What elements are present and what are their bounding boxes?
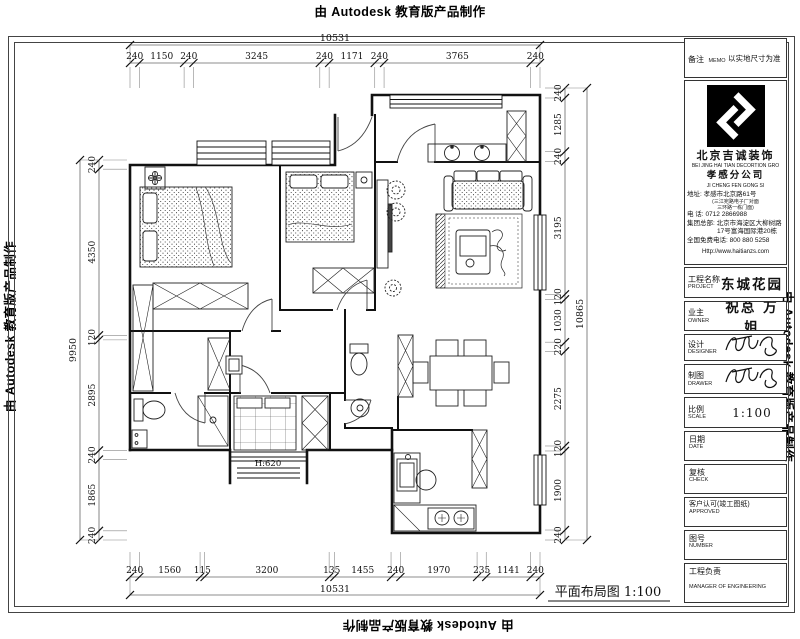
svg-text:3200: 3200 bbox=[255, 566, 278, 576]
owner-row: 业主 OWNER 祝总 万姐 bbox=[684, 301, 787, 331]
svg-text:1141: 1141 bbox=[497, 566, 520, 576]
svg-text:1865: 1865 bbox=[88, 483, 98, 506]
company-name-en: BEI JING HAI TIAN DECORTION GRO bbox=[692, 163, 779, 169]
hallway-cabinets bbox=[208, 338, 242, 390]
dimension-chain-right: 2401285240319512010302202275120190024010… bbox=[545, 84, 591, 544]
project-row: 工程名称 PROJECT 东城花园 bbox=[684, 267, 787, 298]
svg-text:1285: 1285 bbox=[554, 113, 564, 136]
svg-text:240: 240 bbox=[88, 446, 98, 463]
company-logo-icon bbox=[707, 85, 765, 147]
dimension-chain-bottom: 2401560115320013514552401970235114124010… bbox=[126, 552, 544, 599]
svg-text:240: 240 bbox=[316, 52, 333, 62]
svg-text:1970: 1970 bbox=[427, 566, 450, 576]
svg-text:120: 120 bbox=[554, 288, 564, 305]
svg-text:1455: 1455 bbox=[351, 566, 374, 576]
dimension-chain-top: 240115024032452401171240376524010531 bbox=[126, 33, 544, 88]
dimension-chain-left: 2404350120289524018652409950 bbox=[68, 156, 127, 544]
svg-text:240: 240 bbox=[88, 527, 98, 544]
manager-label-en: MANAGER OF ENGINEERING bbox=[689, 584, 782, 590]
project-label-en: PROJECT bbox=[688, 284, 721, 290]
bedroom2-nightstand bbox=[356, 172, 372, 188]
project-value: 东城花园 bbox=[721, 273, 783, 293]
number-row: 图号 NUMBER bbox=[684, 530, 787, 560]
mid-bathroom-door bbox=[345, 400, 371, 424]
exterior-walls bbox=[130, 95, 540, 533]
furniture bbox=[132, 111, 532, 531]
drawer-label-en: DRAWER bbox=[688, 381, 721, 387]
floor-plan-drawing: H:620 2401150240324524011712403765240105… bbox=[0, 0, 800, 639]
bedroom1-door bbox=[242, 299, 272, 331]
bedroom3-bed bbox=[234, 396, 296, 450]
svg-text:1150: 1150 bbox=[150, 52, 173, 62]
scale-value: 1:100 bbox=[721, 406, 783, 420]
tv-cabinet bbox=[377, 180, 392, 268]
svg-text:240: 240 bbox=[527, 566, 544, 576]
svg-text:3765: 3765 bbox=[446, 52, 469, 62]
svg-text:2275: 2275 bbox=[554, 387, 564, 410]
bathroom1-toilet bbox=[134, 399, 165, 421]
living-rug bbox=[436, 214, 522, 288]
scale-label-cn: 比例 bbox=[688, 405, 721, 414]
approved-row: 客户认可(竣工图纸) APPROVED bbox=[684, 497, 787, 527]
top-bathroom-door bbox=[397, 124, 435, 162]
kitchen-table bbox=[416, 470, 436, 490]
number-label-cn: 图号 bbox=[689, 534, 782, 543]
owner-value: 祝总 万姐 bbox=[721, 301, 783, 331]
svg-text:240: 240 bbox=[554, 148, 564, 165]
scale-row: 比例 SCALE 1:100 bbox=[684, 397, 787, 428]
check-label-en: CHECK bbox=[689, 477, 782, 483]
svg-text:240: 240 bbox=[387, 566, 404, 576]
designer-label-cn: 设计 bbox=[688, 340, 721, 349]
company-box: 北京吉诚装饰 BEI JING HAI TIAN DECORTION GRO 孝… bbox=[684, 80, 787, 265]
designer-signature bbox=[722, 334, 782, 358]
check-label-cn: 复核 bbox=[689, 468, 782, 477]
bathroom1-cabinet bbox=[132, 430, 147, 448]
coffee-table bbox=[456, 230, 506, 276]
project-label-cn: 工程名称 bbox=[688, 275, 721, 284]
company-name-cn: 北京吉诚装饰 bbox=[697, 150, 775, 163]
svg-text:4350: 4350 bbox=[88, 241, 98, 264]
bedroom3-wardrobe bbox=[302, 396, 328, 450]
svg-text:240: 240 bbox=[126, 52, 143, 62]
owner-label-cn: 业主 bbox=[688, 308, 721, 317]
hall-cabinet bbox=[398, 335, 413, 397]
kitchen-stove-counter bbox=[394, 505, 476, 531]
dining-set bbox=[413, 340, 509, 406]
svg-text:115: 115 bbox=[194, 566, 211, 576]
svg-text:10531: 10531 bbox=[320, 33, 350, 44]
svg-text:1560: 1560 bbox=[158, 566, 181, 576]
kitchen-cabinet bbox=[472, 430, 487, 488]
branch-name-en: JI CHENG FEN GONG SI bbox=[707, 183, 765, 189]
svg-text:10531: 10531 bbox=[320, 584, 350, 595]
svg-text:9950: 9950 bbox=[68, 338, 79, 362]
svg-text:135: 135 bbox=[323, 566, 340, 576]
svg-text:1030: 1030 bbox=[554, 309, 564, 332]
svg-text:235: 235 bbox=[473, 566, 490, 576]
company-website: Http://www.haitianzs.com bbox=[687, 249, 784, 257]
sofa bbox=[444, 171, 532, 211]
bedroom3-door bbox=[240, 365, 270, 393]
number-label-en: NUMBER bbox=[689, 543, 782, 549]
bathroom-vanity bbox=[428, 144, 506, 162]
bay-window-steps bbox=[237, 468, 300, 478]
bathroom1-door bbox=[175, 393, 205, 423]
check-row: 复核 CHECK bbox=[684, 464, 787, 494]
manager-label-cn: 工程负责 bbox=[689, 567, 782, 576]
approved-label-en: APPROVED bbox=[689, 509, 782, 515]
svg-text:240: 240 bbox=[88, 156, 98, 173]
svg-text:240: 240 bbox=[554, 84, 564, 101]
owner-label-en: OWNER bbox=[688, 318, 721, 324]
memo-label-en: MEMO bbox=[708, 58, 725, 64]
entry-door bbox=[338, 117, 372, 151]
company-contact: 地址: 孝感市北京路61号 (三江宛路电子厂对面 三环路一栋门面) 电 话: 0… bbox=[687, 191, 784, 258]
drawing-title: 平面布局图 1:100 bbox=[548, 585, 670, 601]
svg-text:220: 220 bbox=[554, 338, 564, 355]
bay-window-label: H:620 bbox=[255, 459, 282, 469]
svg-text:10865: 10865 bbox=[575, 299, 586, 329]
svg-text:1171: 1171 bbox=[340, 52, 363, 62]
memo-box: 备注 MEMO 以实地尺寸为准 bbox=[684, 38, 787, 78]
autocad-plot-page: 由 Autodesk 教育版产品制作 由 Autodesk 教育版产品制作 由 … bbox=[0, 0, 800, 639]
memo-note: 以实地尺寸为准 bbox=[726, 53, 783, 64]
designer-row: 设计 DESIGNER bbox=[684, 334, 787, 361]
date-row: 日期 DATE bbox=[684, 431, 787, 461]
bedroom1-bed bbox=[140, 187, 232, 267]
bedroom2-door bbox=[337, 280, 367, 310]
drawer-row: 制图 DRAWER bbox=[684, 364, 787, 394]
memo-label-cn: 备注 bbox=[688, 55, 704, 64]
svg-text:1900: 1900 bbox=[554, 479, 564, 502]
svg-text:240: 240 bbox=[180, 52, 197, 62]
approved-label-cn: 客户认可(竣工图纸) bbox=[689, 501, 782, 509]
svg-text:120: 120 bbox=[88, 329, 98, 346]
drawer-signature bbox=[722, 364, 782, 390]
drawing-title-text: 平面布局图 1:100 bbox=[555, 585, 662, 600]
designer-label-en: DESIGNER bbox=[688, 349, 721, 355]
date-label-en: DATE bbox=[689, 444, 782, 450]
date-label-cn: 日期 bbox=[689, 435, 782, 444]
bathroom-tall-cabinet bbox=[507, 111, 526, 162]
svg-text:240: 240 bbox=[371, 52, 388, 62]
bedroom1-plant-stand bbox=[145, 167, 165, 189]
drawer-label-cn: 制图 bbox=[688, 371, 721, 380]
scale-label-en: SCALE bbox=[688, 414, 721, 420]
branch-name-cn: 孝感分公司 bbox=[707, 170, 765, 182]
svg-text:3195: 3195 bbox=[554, 216, 564, 239]
svg-text:3245: 3245 bbox=[245, 52, 268, 62]
svg-text:240: 240 bbox=[554, 526, 564, 543]
svg-text:240: 240 bbox=[126, 566, 143, 576]
mid-bathroom-fixtures bbox=[350, 344, 369, 417]
manager-row: 工程负责 MANAGER OF ENGINEERING bbox=[684, 563, 787, 603]
bedroom2-bed bbox=[286, 172, 354, 242]
shower bbox=[198, 396, 228, 446]
svg-text:240: 240 bbox=[527, 52, 544, 62]
svg-text:2895: 2895 bbox=[88, 383, 98, 406]
svg-text:120: 120 bbox=[554, 440, 564, 457]
